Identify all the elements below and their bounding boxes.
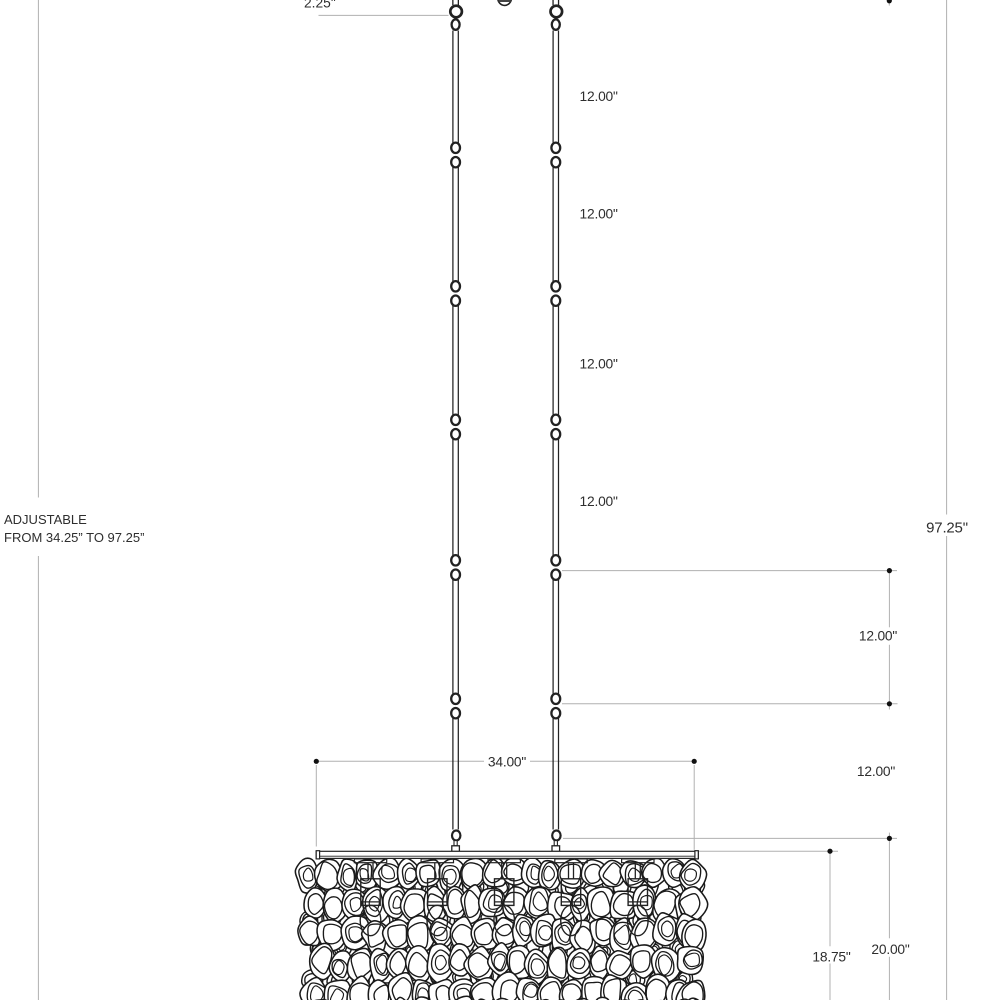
svg-text:34.00": 34.00" — [488, 754, 527, 769]
svg-text:20.00": 20.00" — [871, 942, 910, 957]
svg-text:12.00": 12.00" — [580, 89, 619, 104]
svg-text:12.00": 12.00" — [580, 356, 619, 371]
svg-text:18.75": 18.75" — [812, 949, 851, 964]
svg-text:12.00": 12.00" — [580, 206, 619, 221]
svg-text:2.25": 2.25" — [304, 0, 336, 11]
svg-text:12.00": 12.00" — [859, 628, 898, 643]
svg-text:97.25": 97.25" — [926, 520, 968, 537]
svg-text:ADJUSTABLE: ADJUSTABLE — [4, 512, 87, 527]
svg-text:12.00": 12.00" — [857, 764, 896, 779]
svg-text:FROM 34.25” TO 97.25”: FROM 34.25” TO 97.25” — [4, 530, 144, 545]
svg-text:12.00": 12.00" — [580, 494, 619, 509]
